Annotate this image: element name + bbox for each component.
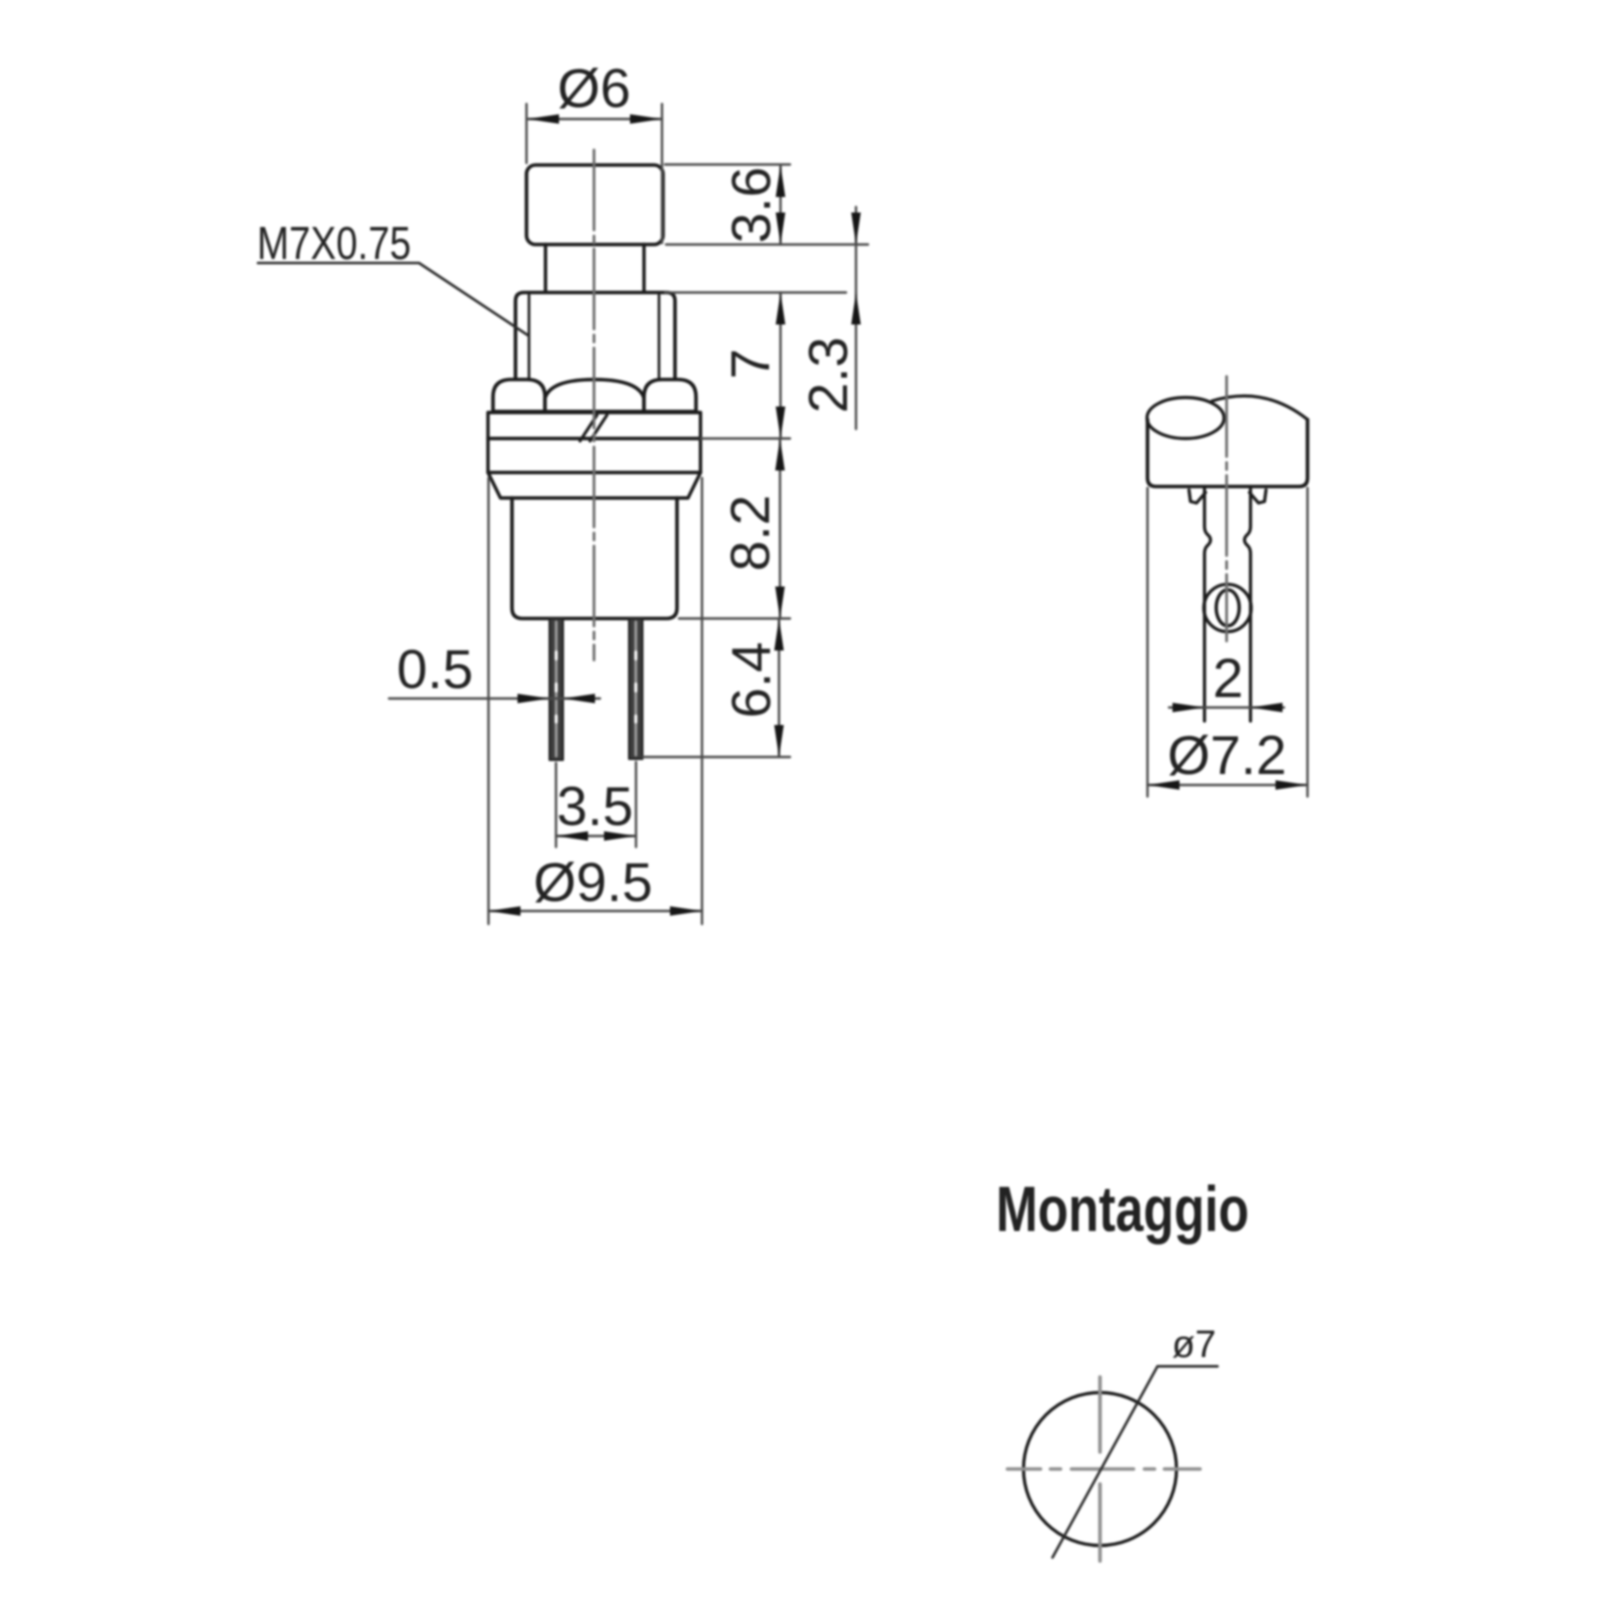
svg-text:0.5: 0.5 bbox=[397, 638, 473, 700]
svg-text:ø7: ø7 bbox=[1172, 1324, 1216, 1366]
svg-text:8.2: 8.2 bbox=[719, 495, 781, 571]
svg-text:7: 7 bbox=[719, 349, 781, 380]
svg-text:Montaggio: Montaggio bbox=[996, 1173, 1249, 1245]
svg-text:Ø7.2: Ø7.2 bbox=[1167, 724, 1286, 786]
svg-text:6.4: 6.4 bbox=[720, 642, 782, 718]
svg-text:M7X0.75: M7X0.75 bbox=[257, 217, 411, 269]
svg-text:3.5: 3.5 bbox=[557, 775, 633, 837]
svg-text:Ø6: Ø6 bbox=[557, 57, 630, 119]
svg-text:Ø9.5: Ø9.5 bbox=[533, 851, 652, 913]
svg-text:2.3: 2.3 bbox=[797, 337, 859, 413]
svg-text:2: 2 bbox=[1213, 647, 1244, 709]
svg-text:3.6: 3.6 bbox=[720, 167, 782, 243]
